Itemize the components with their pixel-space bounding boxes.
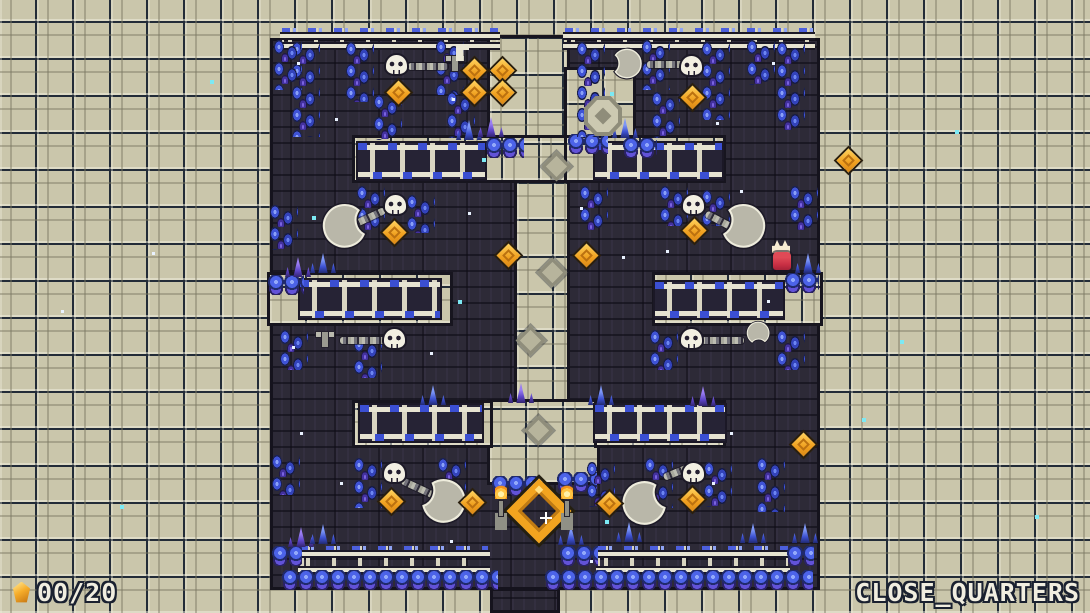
star-sprite (580, 207, 583, 210)
skull-sprite (681, 56, 702, 75)
star-sprite (1035, 515, 1039, 519)
star-sprite (666, 250, 669, 253)
star-sprite (152, 252, 155, 255)
gem-row-sprite (282, 570, 498, 590)
chain-sprite (647, 61, 685, 68)
moon-blade-sprite (718, 203, 768, 253)
moon-blade-sprite (616, 476, 674, 534)
crystal-vine-sprite (755, 458, 785, 512)
gem-row-sprite (787, 546, 814, 566)
skull-sprite (681, 329, 702, 348)
crystal-vine-sprite (352, 338, 382, 378)
star-sprite (900, 340, 904, 344)
rail-platform (300, 546, 488, 572)
star-sprite (740, 190, 743, 193)
star-sprite (955, 130, 959, 134)
star-sprite (716, 122, 719, 125)
star-sprite (61, 310, 64, 313)
gem-row-sprite (545, 570, 813, 590)
torch-sprite (494, 484, 508, 516)
ladder-platform (595, 405, 725, 441)
gem-row-sprite (268, 275, 304, 295)
level-name: CLOSE_QUARTERS (855, 578, 1080, 607)
sparkle-plus-sprite (540, 512, 552, 524)
star-sprite (335, 118, 338, 121)
star-sprite (312, 216, 316, 220)
player-character-sprite (771, 238, 793, 274)
star-sprite (120, 505, 124, 509)
crystal-vine-sprite (650, 92, 680, 138)
gem-row-sprite (272, 546, 302, 566)
blade-sprite (742, 316, 773, 350)
gem-row-sprite (785, 273, 819, 293)
crystal-vine-sprite (344, 42, 374, 102)
skull-sprite (386, 55, 407, 74)
ladder-platform (595, 143, 722, 179)
torch-sprite (560, 484, 574, 516)
skull-sprite (683, 463, 704, 482)
ladder-platform (358, 143, 485, 179)
floor-region (490, 402, 597, 482)
star-sprite (300, 432, 303, 435)
star-sprite (458, 300, 462, 304)
crystal-vine-sprite (775, 42, 805, 130)
star-sprite (862, 418, 866, 422)
crystal-vine-sprite (648, 330, 678, 370)
star-sprite (590, 560, 593, 563)
star-sprite (292, 346, 295, 349)
medallion-sprite (584, 96, 622, 136)
skull-sprite (385, 195, 406, 214)
star-sprite (297, 62, 300, 65)
moon-blade-sprite (320, 203, 370, 253)
skull-sprite (683, 195, 704, 214)
coin-counter-text: 00/20 (37, 578, 117, 607)
crystal-vine-sprite (775, 330, 805, 370)
crystal-vine-sprite (278, 330, 308, 370)
crystal-vine-sprite (405, 195, 435, 233)
star-sprite (772, 62, 775, 65)
skull-sprite (384, 329, 405, 348)
star-sprite (712, 482, 715, 485)
crystal-vine-sprite (270, 455, 300, 495)
crystal-vine-sprite (788, 186, 818, 230)
chain-mount-sprite (316, 328, 334, 348)
star-sprite (767, 300, 770, 303)
gem-row-sprite (568, 134, 608, 154)
chain-sprite (408, 63, 448, 70)
star-sprite (610, 92, 614, 96)
level-name-text: CLOSE_QUARTERS (855, 578, 1080, 607)
crystal-vine-sprite (352, 458, 382, 508)
coin-sprite (836, 148, 860, 172)
star-sprite (452, 98, 455, 101)
star-sprite (730, 432, 733, 435)
coin-icon (12, 582, 31, 604)
star-sprite (468, 212, 471, 215)
crystal-vine-sprite (702, 462, 732, 507)
crystal-vine-sprite (268, 205, 298, 250)
rail-platform (598, 546, 788, 572)
gem-row-sprite (560, 546, 598, 566)
star-sprite (622, 256, 625, 259)
chain-sprite (340, 337, 386, 344)
ladder-platform (300, 280, 440, 318)
gem-row-sprite (486, 138, 524, 158)
dark-region (490, 588, 560, 613)
game-scene[interactable]: 00/20 CLOSE_QUARTERS (0, 0, 1090, 613)
ladder-platform (655, 282, 783, 318)
star-sprite (340, 482, 343, 485)
skull-sprite (384, 463, 405, 482)
star-sprite (210, 80, 214, 84)
ladder-platform (360, 405, 482, 441)
chain-sprite (702, 337, 744, 344)
crystal-vine-sprite (745, 40, 775, 85)
coin-counter: 00/20 (12, 578, 117, 607)
crystal-vine-sprite (700, 42, 730, 120)
gem-row-sprite (623, 138, 657, 158)
star-sprite (450, 540, 453, 543)
crystal-vine-sprite (272, 40, 302, 90)
star-sprite (430, 352, 433, 355)
star-sprite (605, 520, 609, 524)
star-sprite (482, 158, 486, 162)
